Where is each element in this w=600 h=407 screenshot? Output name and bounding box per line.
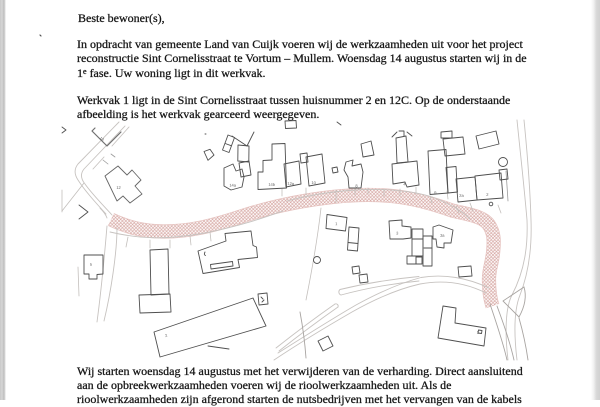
svg-text:14b: 14b: [268, 182, 275, 187]
svg-text:12a: 12a: [287, 181, 294, 186]
svg-text:14a: 14a: [229, 183, 236, 188]
svg-text:1: 1: [335, 221, 338, 226]
svg-text:5: 5: [90, 262, 93, 267]
svg-text:12: 12: [116, 185, 121, 190]
svg-text:3: 3: [396, 231, 399, 236]
svg-text:1: 1: [477, 330, 480, 335]
svg-text:3a: 3a: [440, 233, 445, 238]
svg-text:2: 2: [164, 333, 168, 339]
svg-text:2a: 2a: [459, 193, 464, 198]
svg-text:2: 2: [486, 192, 489, 197]
